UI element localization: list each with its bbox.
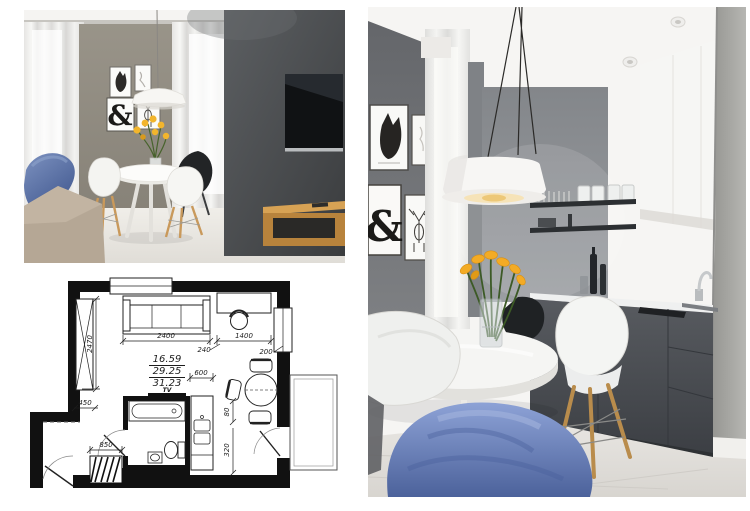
area-figures: 16.59 29.25 31.23 xyxy=(149,354,185,389)
balcony xyxy=(290,375,337,470)
curtain-pelmet xyxy=(421,37,451,58)
window-right xyxy=(274,308,292,352)
svg-text:1400: 1400 xyxy=(235,332,253,340)
sofa-plan xyxy=(123,296,210,334)
glass-vase xyxy=(480,299,502,347)
design-collage: & xyxy=(0,0,750,511)
svg-text:2400: 2400 xyxy=(157,332,175,340)
hatched-unit xyxy=(90,456,122,483)
svg-text:240: 240 xyxy=(197,346,211,354)
balcony-door xyxy=(254,428,280,456)
window-glow-left xyxy=(32,30,62,175)
svg-text:850: 850 xyxy=(99,441,113,449)
floor-plan-drawing: TV 2400 14 xyxy=(28,270,350,500)
dim-sofa-desk-gap: 240 xyxy=(197,344,220,354)
area-line3: 31.23 xyxy=(153,378,182,389)
floor-plan: TV 2400 14 xyxy=(28,270,350,500)
wall-tv xyxy=(285,74,343,152)
kitchen-counter xyxy=(191,396,213,470)
chair-top xyxy=(250,359,272,372)
dim-table-gap: 80 xyxy=(223,398,236,425)
frame-sketch-art xyxy=(135,65,151,91)
svg-text:600: 600 xyxy=(194,369,208,377)
dim-counter: 600 xyxy=(187,369,216,382)
ampersand-glyph: & xyxy=(368,202,403,251)
tv-plan xyxy=(148,393,186,398)
dim-door-offset: 320 xyxy=(223,428,236,476)
baseboard xyxy=(709,437,746,459)
svg-text:450: 450 xyxy=(78,399,92,407)
window-top xyxy=(110,278,172,294)
living-room-photo: & xyxy=(24,10,345,263)
kitchen-photo: & xyxy=(368,7,746,497)
dim-desk: 1400 xyxy=(214,332,274,345)
svg-text:320: 320 xyxy=(223,443,231,457)
washbasin xyxy=(148,452,162,463)
dim-radiator: 850 xyxy=(87,441,125,454)
area-line1: 16.59 xyxy=(153,354,182,365)
svg-text:2470: 2470 xyxy=(86,335,94,353)
svg-text:80: 80 xyxy=(223,407,231,416)
chair-bottom xyxy=(249,411,271,424)
wood-media-shelf xyxy=(263,201,345,246)
ampersand-glyph: & xyxy=(107,99,132,132)
chair-left xyxy=(225,379,242,401)
svg-text:200: 200 xyxy=(259,348,273,356)
lamp-bulb xyxy=(482,195,506,202)
bathroom-door-gap xyxy=(122,430,129,456)
entry-door xyxy=(43,456,73,488)
desk-plan xyxy=(217,293,271,330)
toilet xyxy=(165,442,186,459)
area-line2: 29.25 xyxy=(153,366,182,377)
living-room-render: & xyxy=(24,10,345,263)
upper-cabinets xyxy=(640,37,725,232)
left-wall xyxy=(368,21,430,347)
kitchen-render: & xyxy=(368,7,746,497)
